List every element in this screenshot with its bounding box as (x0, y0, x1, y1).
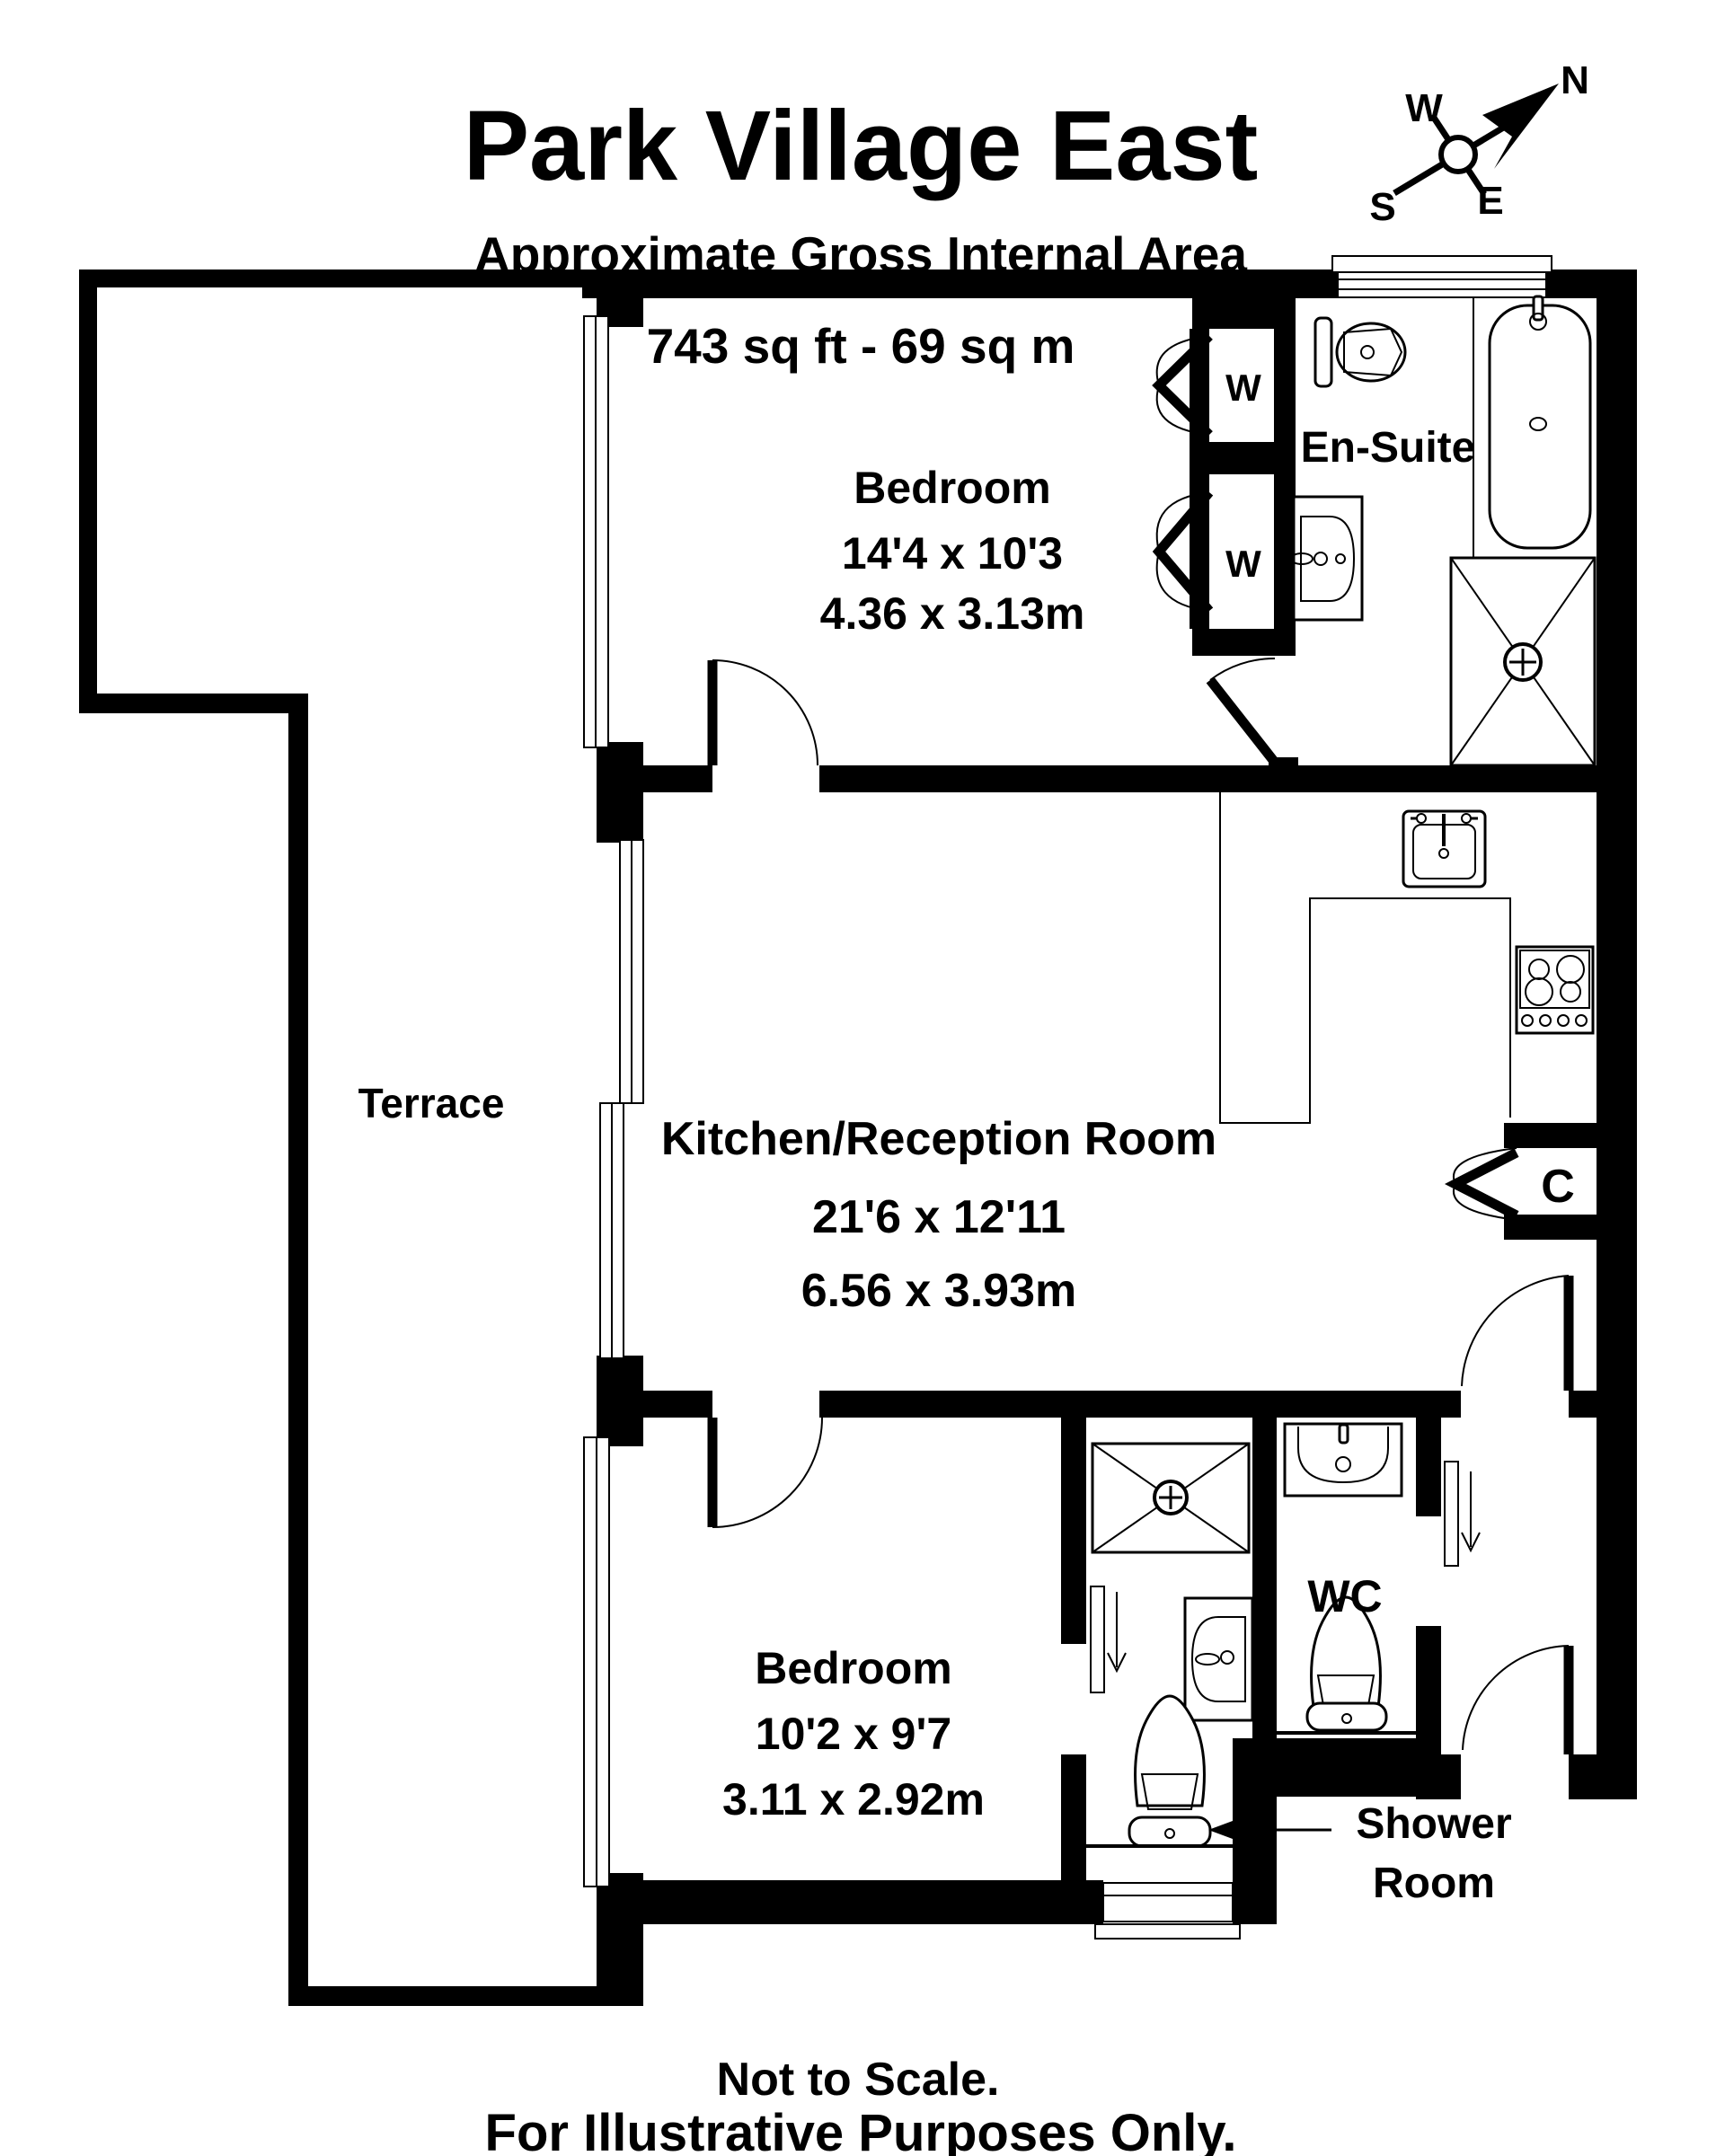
compass-needle-icon (1482, 84, 1559, 169)
closet-door-icon (1454, 1148, 1517, 1220)
shower-room-line1: Shower (1356, 1800, 1511, 1848)
compass-west-label: W (1405, 86, 1443, 130)
entrance-door-icon (1463, 1646, 1569, 1754)
bedroom-bottom-label: Bedroom 10'2 x 9'7 3.11 x 2.92m (722, 1643, 985, 1825)
bedroom-bottom-imperial: 10'2 x 9'7 (756, 1709, 951, 1759)
shower-room-line2: Room (1373, 1860, 1495, 1907)
ensuite-door-icon (1210, 658, 1276, 764)
kitchen-sink-icon (1403, 811, 1485, 887)
bedroom-top-window-icon (584, 316, 608, 747)
wc-sink-icon (1285, 1424, 1402, 1496)
compass-north-label: N (1561, 58, 1589, 102)
shower-room-label: Shower Room (1356, 1800, 1511, 1907)
bedroom-top-imperial: 14'4 x 10'3 (842, 528, 1063, 579)
floorplan-canvas: Park Village East Approximate Gross Inte… (0, 0, 1716, 2156)
wardrobe-top-label: W (1225, 367, 1261, 409)
bedroom-top-door-icon (712, 660, 818, 765)
bedroom-top-name: Bedroom (854, 463, 1050, 513)
footer-note1: Not to Scale. (717, 2054, 1000, 2106)
shower-room-sink-icon (1185, 1598, 1252, 1720)
kitchen-label: Kitchen/Reception Room 21'6 x 12'11 6.56… (661, 1113, 1216, 1317)
kitchen-fixtures (1220, 792, 1593, 1123)
bedroom-bottom-name: Bedroom (755, 1643, 951, 1693)
kitchen-name: Kitchen/Reception Room (661, 1113, 1216, 1165)
wc-label: WC (1307, 1571, 1382, 1621)
hob-icon (1517, 947, 1593, 1033)
bedroom-bottom-window-icon (584, 1437, 609, 1886)
kitchen-metric: 6.56 x 3.93m (801, 1265, 1076, 1317)
towel-rail-icon (1091, 1586, 1126, 1692)
page-title: Park Village East (464, 91, 1259, 201)
terrace-label: Terrace (358, 1080, 505, 1127)
bedroom-top-label: Bedroom 14'4 x 10'3 4.36 x 3.13m (820, 463, 1085, 639)
bedroom-top-metric: 4.36 x 3.13m (820, 588, 1085, 639)
page-area: 743 sq ft - 69 sq m (647, 318, 1075, 374)
hall-kitchen-door-icon (1462, 1276, 1569, 1391)
bath-icon (1490, 296, 1590, 548)
ensuite-fixtures (1291, 296, 1595, 765)
bedroom-bottom-metric: 3.11 x 2.92m (722, 1774, 985, 1825)
shower-room-fixtures (1086, 1444, 1252, 1846)
wardrobe-bottom-label: W (1225, 543, 1261, 585)
kitchen-window-lower-icon (600, 1103, 624, 1358)
footer: Not to Scale. For Illustrative Purposes … (485, 2054, 1237, 2156)
floorplan-page: Park Village East Approximate Gross Inte… (0, 0, 1716, 2156)
windows (584, 256, 1552, 1939)
compass-icon: N W S E (1369, 58, 1589, 229)
bedroom-bottom-door-icon (712, 1418, 822, 1527)
compass-east-label: E (1477, 179, 1503, 223)
shower-room-window-icon (1095, 1883, 1240, 1939)
ensuite-toilet-icon (1315, 318, 1405, 386)
compass-south-label: S (1369, 185, 1395, 229)
closet-label: C (1541, 1161, 1575, 1213)
hall-fixtures (1445, 1462, 1480, 1566)
shower-tray-icon (1092, 1444, 1249, 1552)
ensuite-shower-icon (1451, 558, 1595, 765)
hall-towel-rail-icon (1445, 1462, 1480, 1566)
ensuite-window-icon (1332, 256, 1552, 296)
kitchen-window-upper-icon (620, 840, 643, 1103)
ensuite-sink-icon (1291, 497, 1362, 620)
room-labels: Bedroom 14'4 x 10'3 4.36 x 3.13m W W En-… (358, 367, 1575, 1907)
header: Park Village East Approximate Gross Inte… (464, 91, 1259, 374)
kitchen-imperial: 21'6 x 12'11 (812, 1191, 1066, 1243)
footer-note2: For Illustrative Purposes Only. (485, 2104, 1237, 2156)
ensuite-label: En-Suite (1301, 424, 1476, 472)
